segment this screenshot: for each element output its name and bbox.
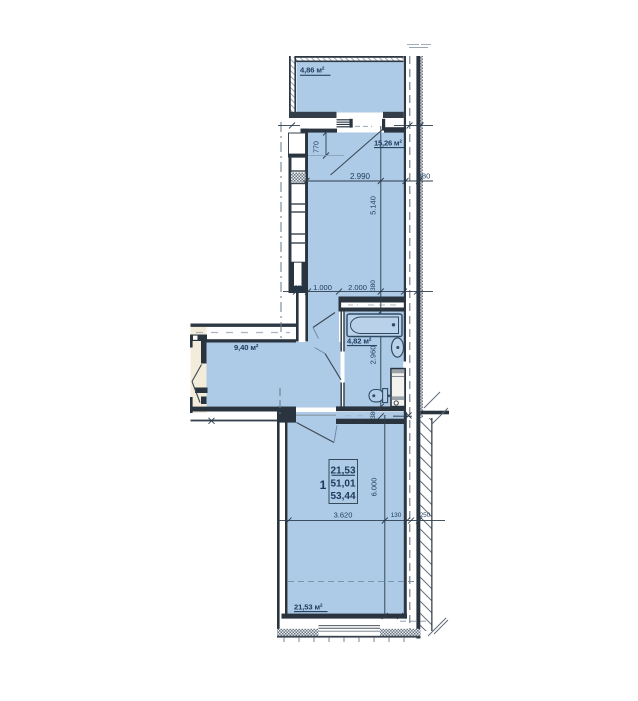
svg-text:130: 130 xyxy=(391,512,402,519)
svg-text:250: 250 xyxy=(420,512,431,519)
svg-text:1: 1 xyxy=(320,478,327,492)
svg-text:51,01: 51,01 xyxy=(330,479,355,490)
svg-text:770: 770 xyxy=(314,141,321,153)
svg-text:2.000: 2.000 xyxy=(348,283,367,292)
svg-text:21,53 м²: 21,53 м² xyxy=(294,603,323,612)
svg-text:6.000: 6.000 xyxy=(370,478,379,497)
svg-text:53,44: 53,44 xyxy=(330,491,355,502)
svg-text:2.960: 2.960 xyxy=(369,346,378,365)
svg-text:3.620: 3.620 xyxy=(334,511,353,520)
svg-text:380: 380 xyxy=(294,285,305,292)
svg-text:380: 380 xyxy=(370,280,377,291)
svg-text:4,82 м²: 4,82 м² xyxy=(347,337,372,346)
svg-text:1.000: 1.000 xyxy=(313,283,332,292)
svg-text:9,40 м²: 9,40 м² xyxy=(234,343,259,352)
svg-text:380: 380 xyxy=(418,172,431,181)
svg-text:380: 380 xyxy=(370,408,377,419)
svg-text:5.140: 5.140 xyxy=(369,196,378,215)
svg-text:15,26 м²: 15,26 м² xyxy=(374,139,402,148)
svg-text:4,86 м²: 4,86 м² xyxy=(300,66,325,75)
svg-text:2.990: 2.990 xyxy=(350,172,371,181)
